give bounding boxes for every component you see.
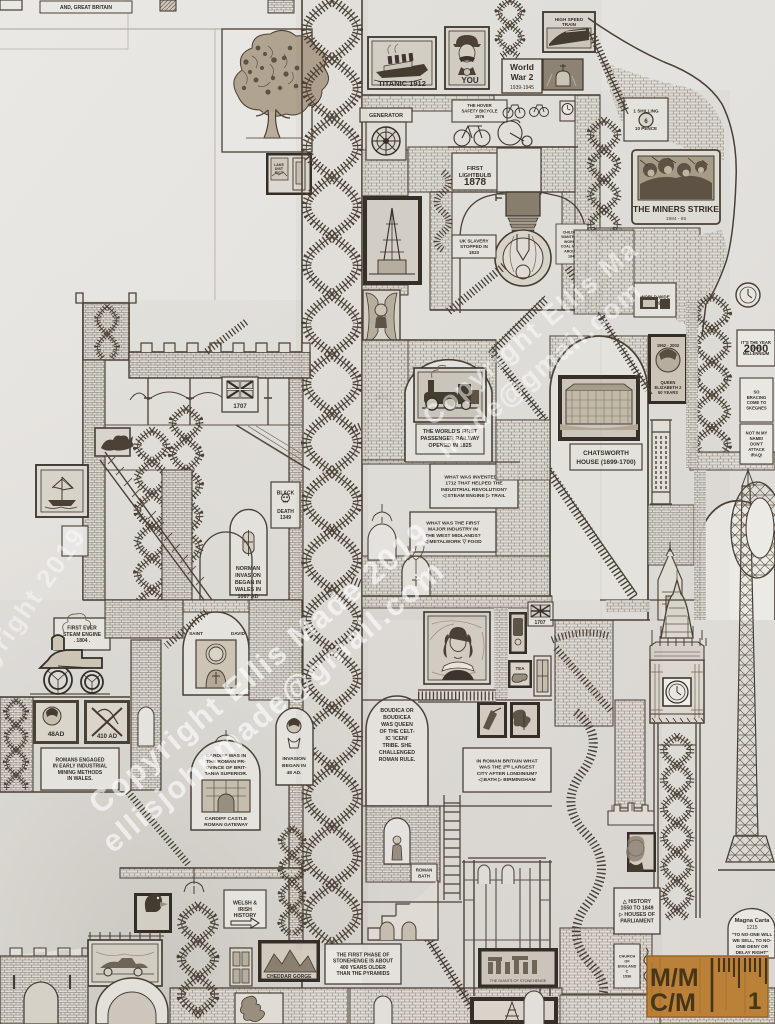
svg-text:SKEGNES: SKEGNES [746,406,767,411]
svg-text:BRACING: BRACING [747,395,767,400]
svg-text:1215: 1215 [746,925,757,931]
svg-text:DON'T: DON'T [750,442,763,447]
svg-text:1: 1 [748,988,761,1015]
svg-text:2000: 2000 [744,343,768,355]
svg-text:SO: SO [753,389,760,394]
svg-text:IRAQ!: IRAQ! [751,452,763,457]
svg-text:WE SELL, TO NO-: WE SELL, TO NO- [733,938,772,943]
svg-text:DELAY RIGHT": DELAY RIGHT" [736,950,769,955]
svg-text:COME TO: COME TO [747,400,767,405]
svg-text:ATTACK: ATTACK [748,447,765,452]
svg-text:AND, GREAT BRITAIN: AND, GREAT BRITAIN [60,5,112,11]
svg-text:NOT IN MY: NOT IN MY [746,431,768,436]
svg-text:NAME!: NAME! [750,436,764,441]
svg-text:"TO NO-ONE WILL: "TO NO-ONE WILL [732,932,773,937]
svg-text:Magna Carta: Magna Carta [735,918,771,924]
svg-text:ONE DENY OR: ONE DENY OR [736,944,769,949]
